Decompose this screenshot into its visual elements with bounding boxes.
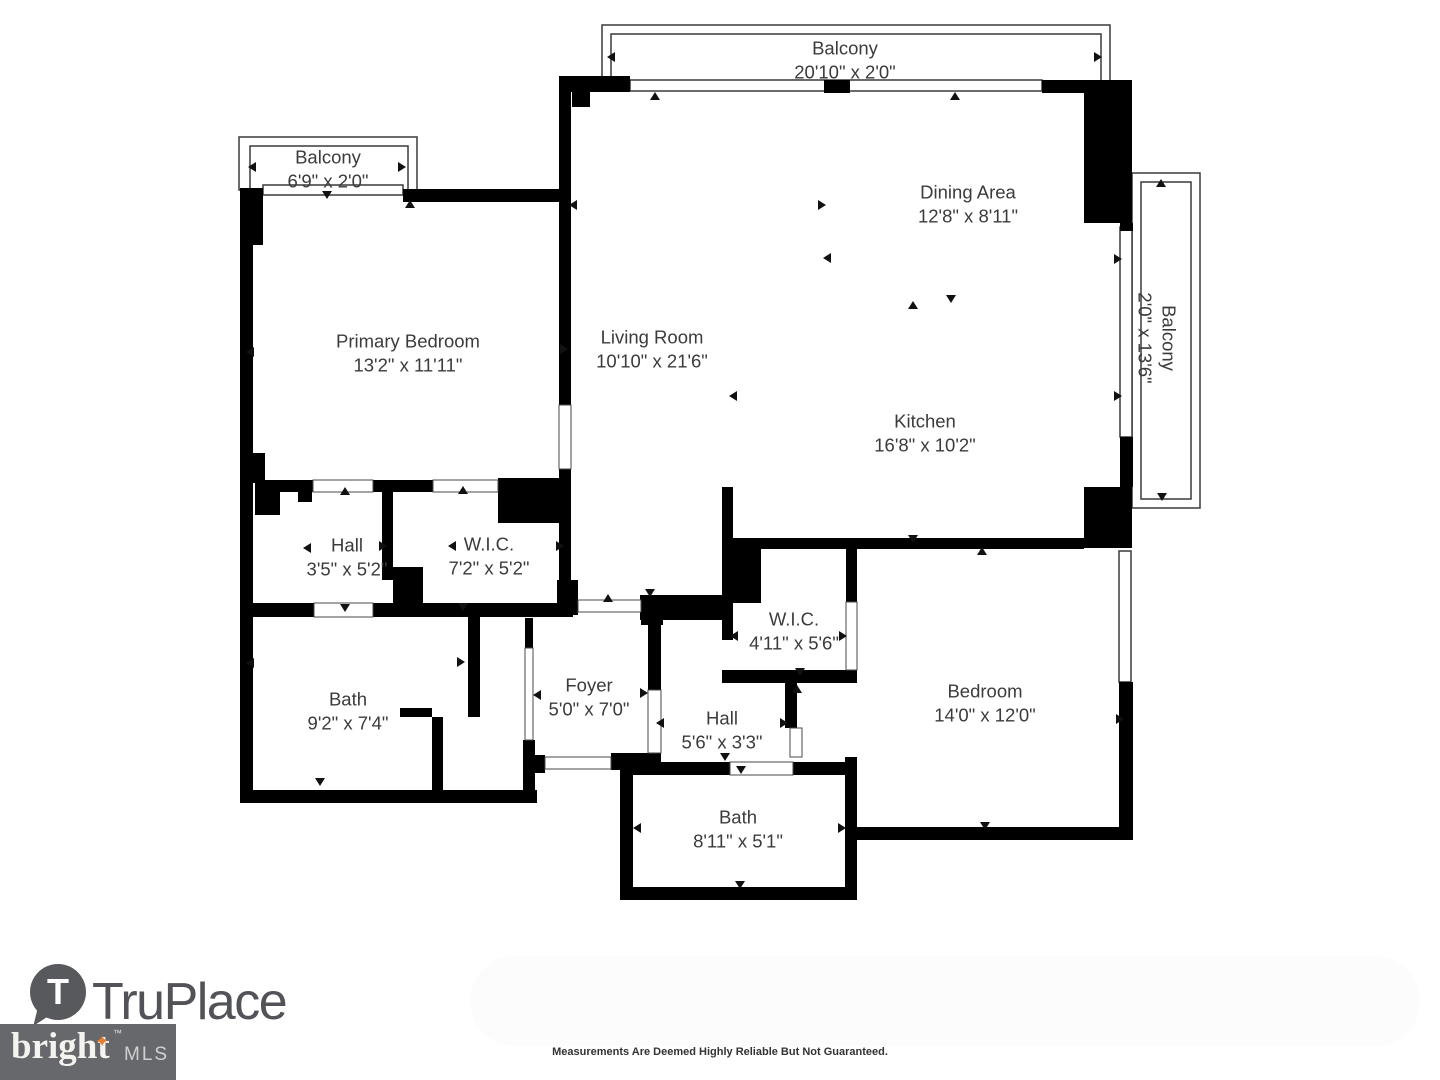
room-dims: 13'2" x 11'11" [336,353,480,377]
room-label-hall-lower: Hall 5'6" x 3'3" [682,707,763,754]
room-dims: 5'6" x 3'3" [682,730,763,754]
room-name: Primary Bedroom [336,330,480,354]
room-name: Kitchen [874,410,975,434]
room-name: W.I.C. [749,608,839,632]
room-dims: 12'8" x 8'11" [918,204,1018,228]
room-name: Bedroom [934,680,1035,704]
room-label-balcony-top: Balcony 20'10" x 2'0" [794,37,895,84]
room-dims: 3'5" x 5'2" [307,557,388,581]
room-dims: 10'10" x 21'6" [596,349,708,373]
room-label-bedroom: Bedroom 14'0" x 12'0" [934,680,1035,727]
room-name: Dining Area [918,181,1018,205]
truplace-wordmark: TruPlace [92,976,286,1028]
room-label-hall-upper: Hall 3'5" x 5'2" [307,534,388,581]
room-name: Foyer [549,674,630,698]
room-name: Balcony [794,37,895,61]
truplace-pin-icon: T [30,964,86,1020]
trademark-symbol: ™ [113,1028,122,1038]
room-dims: 5'0" x 7'0" [549,697,630,721]
room-name: Hall [682,707,763,731]
room-name: Balcony [1157,292,1181,383]
room-label-foyer: Foyer 5'0" x 7'0" [549,674,630,721]
room-name: Bath [693,806,783,830]
room-label-living-room: Living Room 10'10" x 21'6" [596,326,708,373]
room-name: Living Room [596,326,708,350]
room-name: Bath [308,688,389,712]
room-dims: 6'9" x 2'0" [288,169,369,193]
room-dims: 7'2" x 5'2" [449,556,530,580]
floor-plan-page: Balcony 20'10" x 2'0" Balcony 6'9" x 2'0… [0,0,1440,1080]
room-label-bath-lower: Bath 8'11" x 5'1" [693,806,783,853]
room-label-bath-upper: Bath 9'2" x 7'4" [308,688,389,735]
room-dims: 2'0" x 13'6" [1134,292,1158,383]
room-label-balcony-left: Balcony 6'9" x 2'0" [288,146,369,193]
room-name: Balcony [288,146,369,170]
floor-plan-drawing [0,0,1440,1080]
disclaimer-text: Measurements Are Deemed Highly Reliable … [0,1046,1440,1058]
room-label-dining-area: Dining Area 12'8" x 8'11" [918,181,1018,228]
room-dims: 9'2" x 7'4" [308,711,389,735]
pin-letter: T [30,964,86,1020]
room-dims: 8'11" x 5'1" [693,829,783,853]
room-name: W.I.C. [449,533,530,557]
room-label-kitchen: Kitchen 16'8" x 10'2" [874,410,975,457]
room-label-wic-lower: W.I.C. 4'11" x 5'6" [749,608,839,655]
room-dims: 4'11" x 5'6" [749,631,839,655]
room-name: Hall [307,534,388,558]
room-label-primary-bedroom: Primary Bedroom 13'2" x 11'11" [336,330,480,377]
room-label-balcony-right: Balcony 2'0" x 13'6" [1134,292,1181,383]
room-dims: 20'10" x 2'0" [794,60,895,84]
room-dims: 16'8" x 10'2" [874,433,975,457]
room-label-wic-upper: W.I.C. 7'2" x 5'2" [449,533,530,580]
room-dims: 14'0" x 12'0" [934,703,1035,727]
